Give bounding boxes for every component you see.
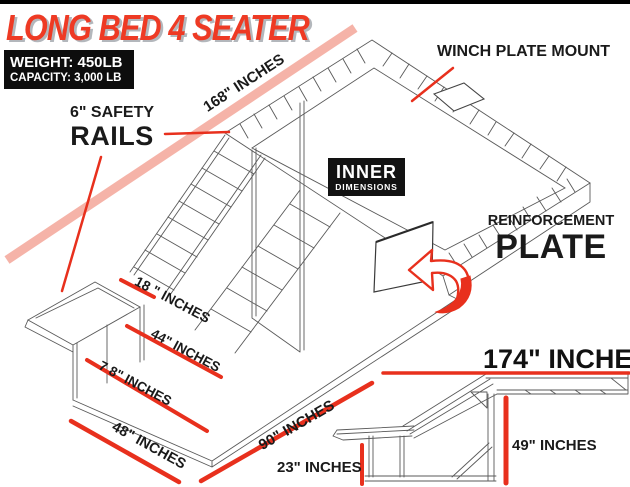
inner-dimensions-badge-bottom: DIMENSIONS [328, 183, 405, 192]
winch-plate [434, 83, 484, 111]
dimension-label-49: 49" INCHES [512, 437, 597, 454]
inner-dimensions-badge: INNER DIMENSIONS [328, 158, 405, 196]
inner-dimensions-badge-top: INNER [328, 163, 405, 181]
capacity-label: CAPACITY: 3,000 LB [10, 72, 128, 84]
safety-rails-label-bottom: RAILS [58, 123, 166, 150]
page-title: LONG BED 4 SEATER [6, 7, 309, 49]
infographic-canvas: LONG BED 4 SEATER WEIGHT: 450LB CAPACITY… [0, 0, 630, 487]
dimension-label-23: 23" INCHES [277, 459, 362, 476]
reinforcement-plate-label-top: REINFORCEMENT [486, 214, 616, 229]
reinforcement-plate-label-bottom: PLATE [486, 230, 616, 264]
spec-box: WEIGHT: 450LB CAPACITY: 3,000 LB [4, 50, 134, 89]
winch-plate-label: WINCH PLATE MOUNT [437, 43, 610, 61]
safety-rails-label: 6" SAFETY RAILS [58, 105, 166, 150]
dimension-label-174: 174" INCHES [483, 344, 630, 375]
safety-rails-pointer-line [165, 132, 229, 134]
reinforcement-plate-label: REINFORCEMENT PLATE [486, 214, 616, 264]
weight-label: WEIGHT: 450LB [10, 54, 128, 71]
side-view-drawing [333, 374, 628, 481]
safety-rails-label-top: 6" SAFETY [58, 105, 166, 121]
top-border-bar [0, 0, 630, 4]
